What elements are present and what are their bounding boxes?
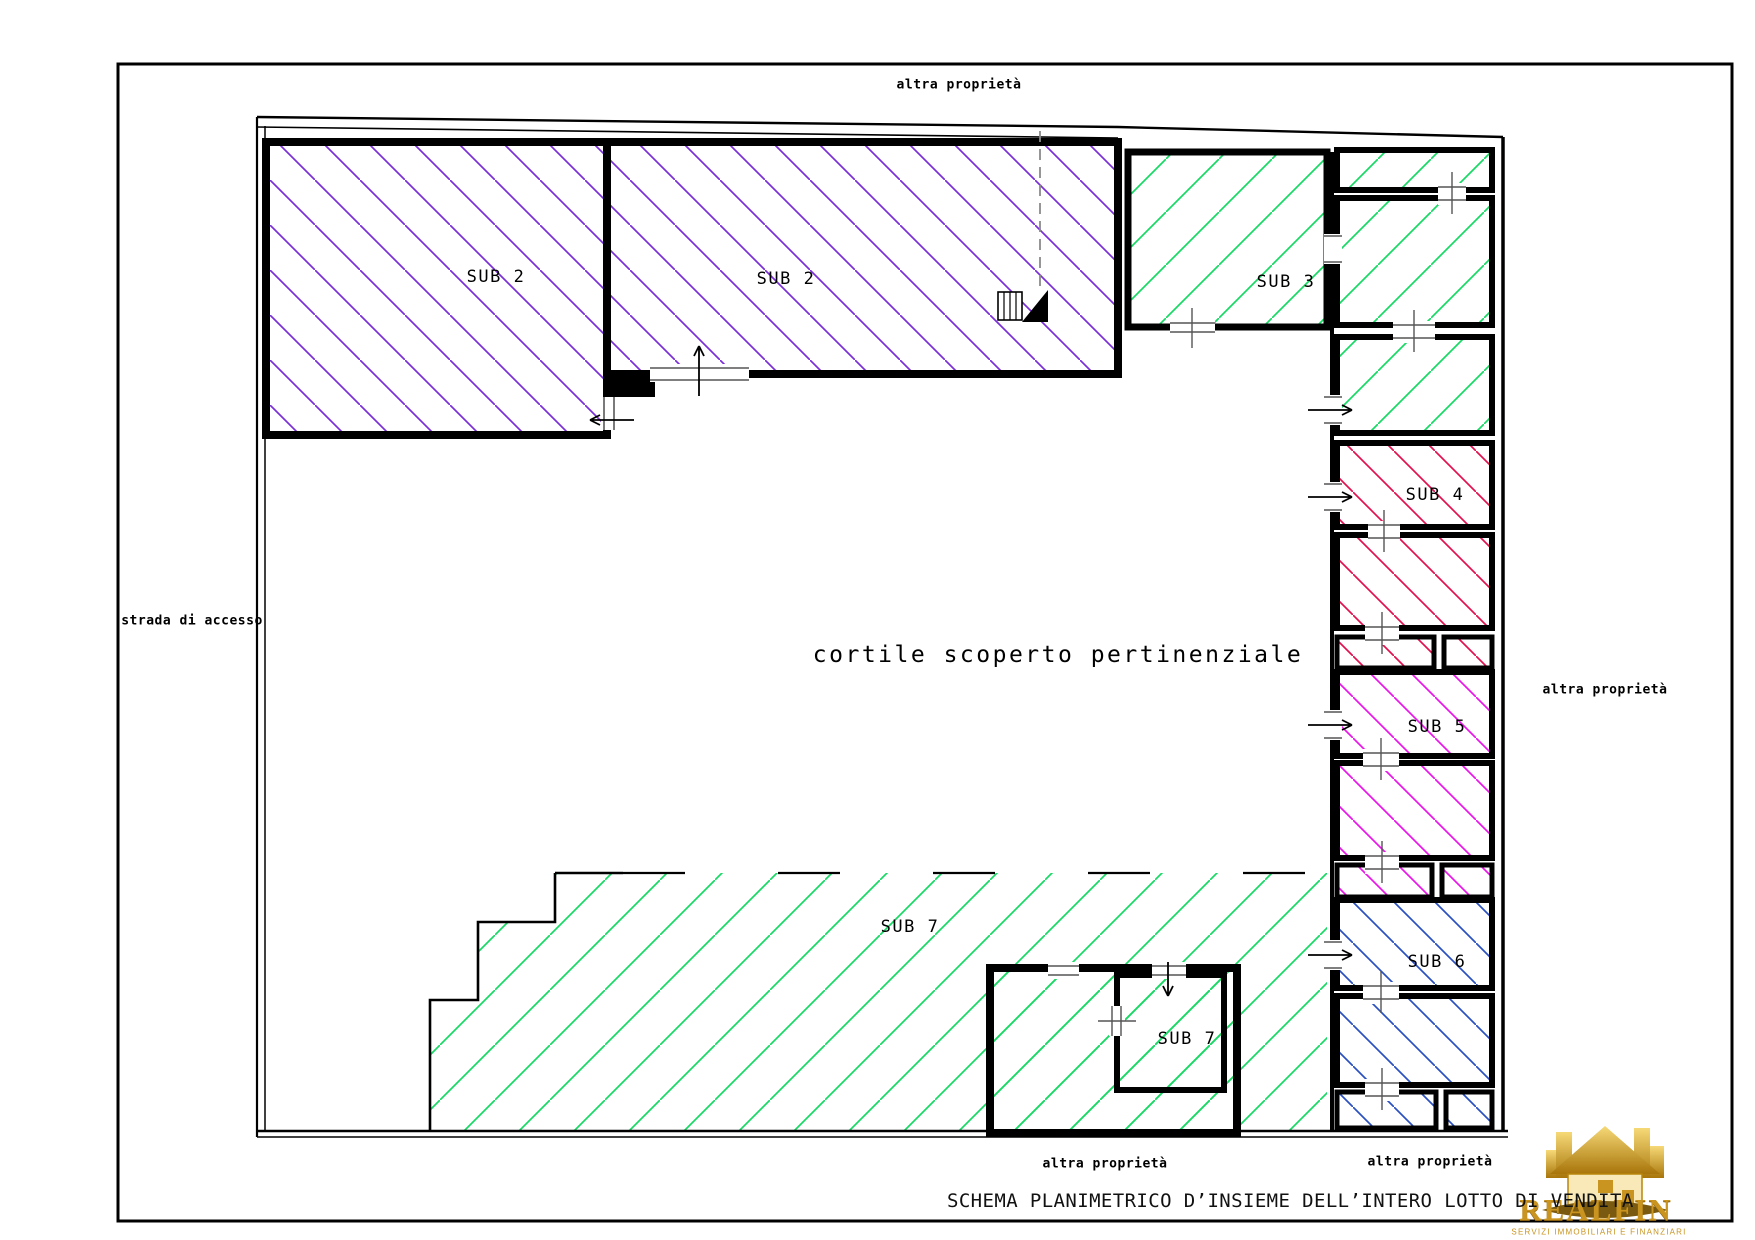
room-wing-green-1: [1337, 150, 1492, 190]
boundary-label-right: altra proprietà: [1543, 683, 1668, 698]
room-sub4-b: [1337, 535, 1492, 628]
room-wing-green-2: [1337, 198, 1492, 325]
room-sub2-left: [266, 142, 607, 435]
room-label-sub2-right: SUB 2: [757, 269, 816, 289]
realfin-logo-tagline: SERVIZI IMMOBILIARI E FINANZIARI: [1511, 1228, 1686, 1237]
plan-sheet: altra proprietà strada di accesso altra …: [0, 0, 1755, 1240]
site-plan-svg: [0, 0, 1755, 1240]
room-sub3: [1128, 152, 1327, 327]
room-label-sub5: SUB 5: [1408, 717, 1467, 737]
room-sub5-b: [1337, 763, 1492, 858]
room-label-sub3: SUB 3: [1257, 272, 1316, 292]
room-sub6-b: [1337, 996, 1492, 1085]
room-label-sub2-left: SUB 2: [467, 267, 526, 287]
boundary-label-left: strada di accesso: [121, 614, 263, 629]
room-sub5-d: [1442, 865, 1492, 897]
boundary-label-top: altra proprietà: [897, 78, 1022, 93]
drawing-title: SCHEMA PLANIMETRICO D’INSIEME DELL’INTER…: [947, 1190, 1634, 1212]
room-label-sub7-annex: SUB 7: [1158, 1029, 1217, 1049]
room-label-sub7-main: SUB 7: [881, 917, 940, 937]
boundary-label-bottom-right: altra proprietà: [1368, 1155, 1493, 1170]
room-sub6: [1337, 900, 1492, 988]
room-sub4-d: [1444, 637, 1492, 668]
wall-jog: [607, 374, 655, 397]
room-sub2-right: [607, 142, 1118, 374]
room-label-sub4: SUB 4: [1406, 485, 1465, 505]
room-sub6-d: [1446, 1092, 1492, 1128]
courtyard-label: cortile scoperto pertinenziale: [813, 642, 1303, 668]
room-label-sub6: SUB 6: [1408, 952, 1467, 972]
boundary-label-bottom-center: altra proprietà: [1043, 1157, 1168, 1172]
room-sub5: [1337, 672, 1492, 756]
